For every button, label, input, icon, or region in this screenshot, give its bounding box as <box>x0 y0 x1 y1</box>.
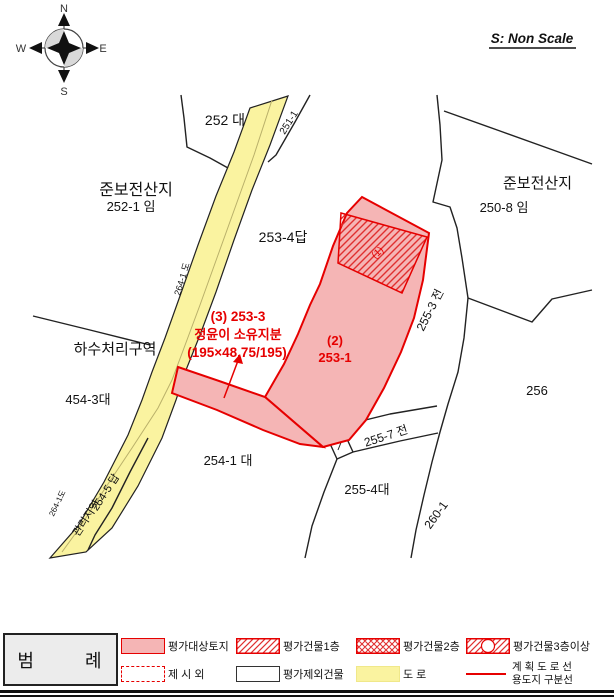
legend-label-target-parcel: 평가대상토지 <box>168 638 229 654</box>
red-note-line3: (195×48.75/195) <box>187 345 286 360</box>
parcel-label-250-8: 250-8 임 <box>480 200 529 215</box>
compass-s-label: S <box>60 86 67 98</box>
compass-n-label: N <box>60 3 68 15</box>
legend-label-building-1f: 평가건물1층 <box>283 638 340 654</box>
west-arrow <box>29 42 42 54</box>
compass-e-label: E <box>99 43 106 55</box>
compass-rose: N S W E <box>16 3 107 98</box>
svg-text:S: Non Scale: S: Non Scale <box>491 31 574 46</box>
legend-label-jesi: 제 시 외 <box>168 666 204 682</box>
legend-label-lines: 계 획 도 로 선 용도지 구분선 <box>512 661 573 687</box>
south-arrow <box>58 70 70 83</box>
zone-label-right: 준보전산지 <box>503 175 572 192</box>
parcel-label-260-1: 260-1 <box>421 498 451 531</box>
compass-w-label: W <box>16 43 27 55</box>
legend-swatch-road <box>356 666 400 682</box>
zone-label-left: 준보전산지 <box>99 181 173 199</box>
red-note-line1: (3) 253-3 <box>211 309 266 324</box>
legend-swatch-excluded-building <box>236 666 280 682</box>
legend-swatch-jesi <box>121 666 165 682</box>
legend-swatch-building-3f <box>466 638 510 654</box>
parcel-label-254-1: 254-1 대 <box>204 453 253 468</box>
parcel-label-454-3: 454-3대 <box>65 392 110 407</box>
red-note-line2: 정윤이 소유지분 <box>194 327 281 342</box>
bottom-double-rule <box>0 690 614 697</box>
legend-label-building-3f: 평가건물3층이상 <box>513 638 590 654</box>
parcel-label-255-4: 255-4대 <box>344 482 389 497</box>
legend-label-use-boundary: 용도지 구분선 <box>512 674 573 686</box>
parcel-label-256: 256 <box>526 383 548 398</box>
legend-title: 범 례 <box>3 633 118 686</box>
road-label-264-1-lower: 264-1도 <box>47 489 67 518</box>
parcel-2-number: (2) <box>327 333 343 348</box>
legend-label-planned-road: 계 획 도 로 선 <box>512 661 572 673</box>
parcel-label-252-1: 252-1 임 <box>107 199 156 214</box>
parcel-label-253-4: 253-4답 <box>259 229 308 245</box>
map-area: N S W E S: Non Scale <box>0 0 614 628</box>
parcel-label-253-1: 253-1 <box>318 350 351 365</box>
parcel-label-252: 252 대 <box>205 112 245 128</box>
legend-label-road: 도 로 <box>403 666 426 682</box>
legend-planned-road-line <box>466 673 506 675</box>
zone-label-sewage: 하수처리구역 <box>74 341 157 358</box>
legend-label-building-2f: 평가건물2층 <box>403 638 460 654</box>
parcel-label-255-7: 255-7 전 <box>362 422 409 449</box>
legend-swatch-target-parcel <box>121 638 165 654</box>
scale-note: S: Non Scale <box>489 31 576 48</box>
legend: 평가대상토지 평가건물1층 평가건물2층 <box>121 634 611 686</box>
cadastral-map-page: N S W E S: Non Scale <box>0 0 614 700</box>
east-arrow <box>86 42 99 54</box>
legend-swatch-building-1f <box>236 638 280 654</box>
legend-label-excluded-building: 평가제외건물 <box>283 666 344 682</box>
legend-swatch-building-2f <box>356 638 400 654</box>
